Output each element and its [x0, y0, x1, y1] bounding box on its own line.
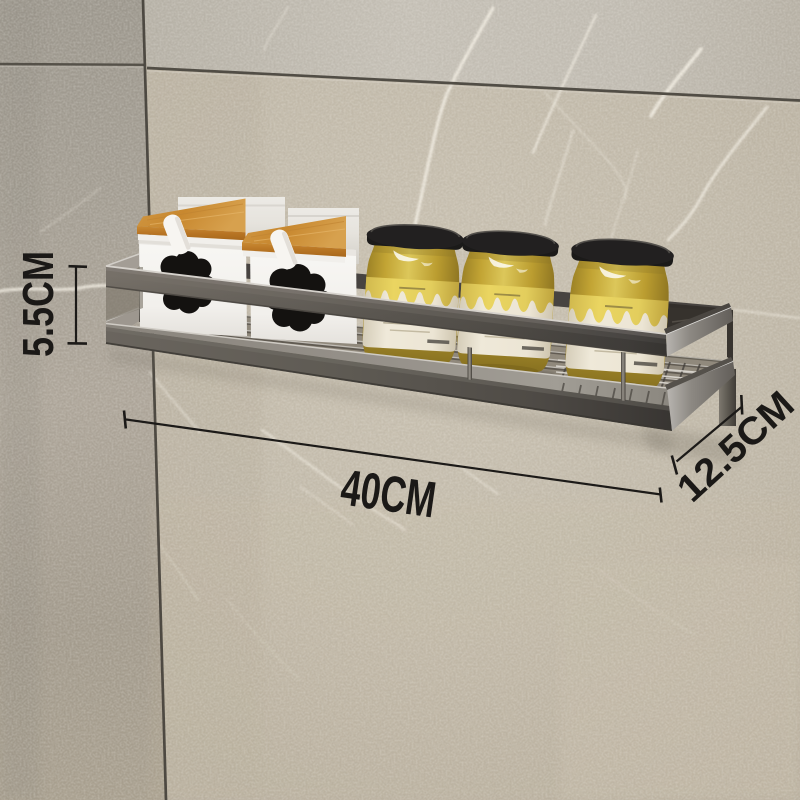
svg-text:5.5CM: 5.5CM	[14, 251, 63, 357]
